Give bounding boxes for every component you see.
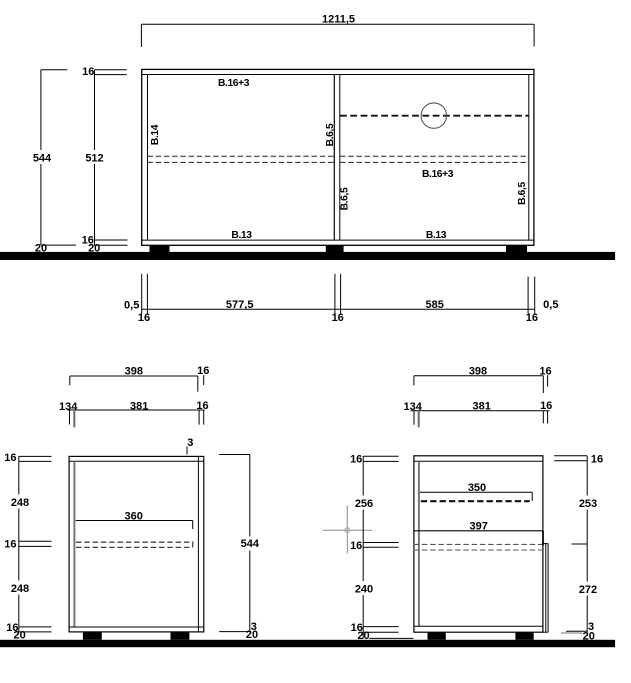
svg-text:16: 16 (591, 454, 603, 466)
svg-text:585: 585 (426, 299, 444, 311)
svg-text:253: 253 (579, 498, 597, 510)
svg-text:16: 16 (197, 365, 209, 377)
svg-text:0,5: 0,5 (124, 300, 139, 312)
svg-text:B.16+3: B.16+3 (218, 78, 250, 89)
svg-text:0,5: 0,5 (543, 299, 558, 311)
svg-text:16: 16 (540, 400, 552, 412)
svg-text:397: 397 (470, 521, 488, 533)
svg-text:B.13: B.13 (231, 230, 252, 241)
svg-text:20: 20 (357, 630, 369, 642)
svg-text:381: 381 (130, 401, 148, 413)
svg-text:20: 20 (583, 630, 595, 642)
svg-text:272: 272 (579, 584, 597, 596)
svg-text:360: 360 (125, 510, 143, 522)
svg-text:398: 398 (469, 366, 487, 378)
svg-text:248: 248 (11, 497, 29, 509)
svg-text:B.13: B.13 (426, 230, 447, 241)
svg-text:248: 248 (11, 583, 29, 595)
svg-text:20: 20 (246, 629, 258, 641)
svg-text:B.6,5: B.6,5 (325, 123, 336, 146)
svg-text:577,5: 577,5 (226, 299, 254, 311)
svg-text:256: 256 (355, 498, 373, 510)
svg-text:B.16+3: B.16+3 (422, 169, 454, 180)
svg-text:544: 544 (241, 538, 260, 550)
svg-text:16: 16 (196, 400, 208, 412)
svg-text:134: 134 (59, 401, 78, 413)
svg-text:381: 381 (473, 401, 491, 413)
svg-text:16: 16 (4, 452, 16, 464)
svg-text:B.6,5: B.6,5 (340, 187, 351, 210)
svg-text:16: 16 (526, 312, 538, 324)
svg-text:240: 240 (355, 583, 373, 595)
svg-text:16: 16 (350, 454, 362, 466)
svg-text:16: 16 (138, 312, 150, 324)
svg-text:512: 512 (85, 153, 103, 165)
svg-text:3: 3 (187, 437, 193, 449)
svg-text:398: 398 (125, 366, 143, 378)
svg-text:16: 16 (539, 366, 551, 378)
svg-text:16: 16 (350, 540, 362, 552)
svg-text:544: 544 (33, 153, 52, 165)
svg-text:B.14: B.14 (150, 124, 161, 145)
svg-text:16: 16 (82, 66, 94, 78)
svg-text:16: 16 (332, 312, 344, 324)
svg-text:134: 134 (404, 401, 423, 413)
svg-text:1211,5: 1211,5 (322, 14, 355, 26)
svg-text:350: 350 (468, 482, 486, 494)
svg-text:16: 16 (4, 539, 16, 551)
svg-text:B.6,5: B.6,5 (517, 182, 528, 205)
